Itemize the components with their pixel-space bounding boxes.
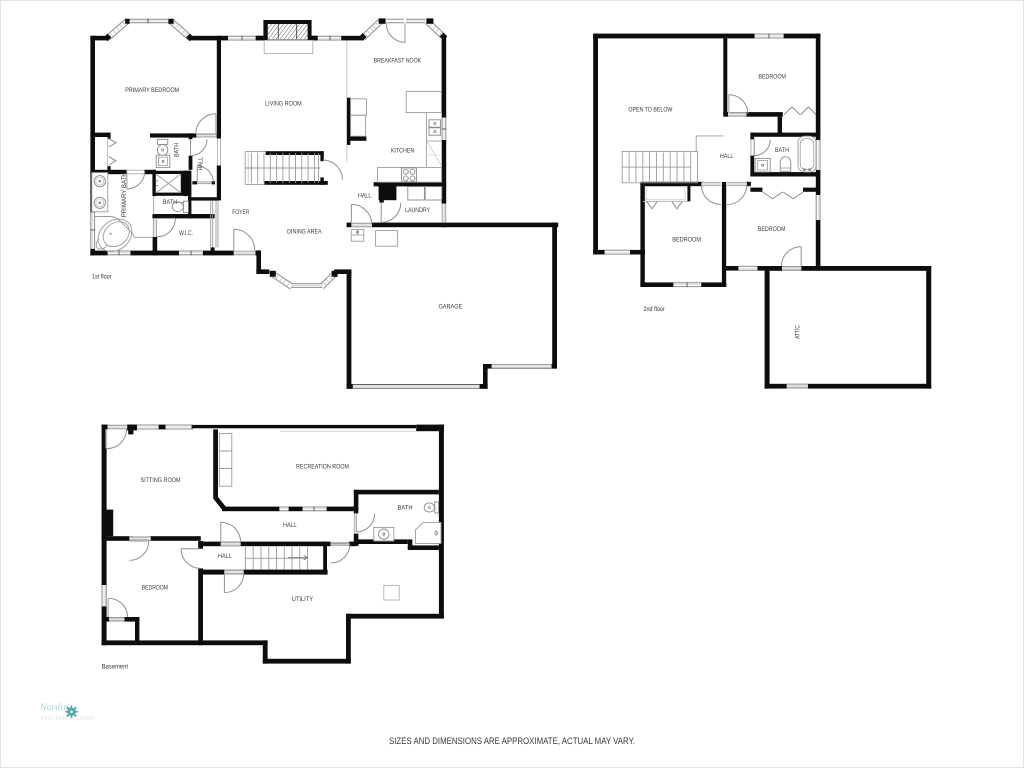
- svg-text:OPEN TO BELOW: OPEN TO BELOW: [628, 107, 673, 114]
- svg-text:HALL: HALL: [358, 193, 372, 200]
- svg-text:BREAKFAST NOOK: BREAKFAST NOOK: [374, 58, 422, 65]
- svg-text:BEDROOM: BEDROOM: [672, 237, 701, 244]
- svg-text:HALL: HALL: [720, 153, 734, 160]
- svg-text:BATH: BATH: [173, 143, 180, 157]
- svg-text:BEDROOM: BEDROOM: [758, 226, 786, 233]
- svg-text:HALL: HALL: [283, 522, 297, 529]
- svg-text:FOYER: FOYER: [232, 209, 249, 216]
- svg-text:BEDROOM: BEDROOM: [758, 74, 786, 81]
- svg-text:BEDROOM: BEDROOM: [142, 584, 168, 591]
- svg-text:Basement: Basement: [102, 664, 128, 671]
- svg-text:GARAGE: GARAGE: [439, 304, 463, 311]
- svg-text:1st floor: 1st floor: [92, 274, 112, 281]
- svg-text:DINING AREA: DINING AREA: [287, 228, 322, 235]
- svg-text:BATH: BATH: [163, 199, 177, 206]
- svg-text:SITTING ROOM: SITTING ROOM: [141, 477, 181, 484]
- svg-text:RECREATION ROOM: RECREATION ROOM: [296, 464, 349, 471]
- svg-text:HALL: HALL: [198, 157, 205, 171]
- svg-text:BATH: BATH: [775, 147, 789, 154]
- svg-text:KITCHEN: KITCHEN: [391, 148, 415, 155]
- svg-text:W.I.C.: W.I.C.: [179, 230, 193, 237]
- svg-text:HALL: HALL: [218, 553, 232, 560]
- svg-text:ATTIC: ATTIC: [794, 325, 801, 339]
- svg-text:2nd floor: 2nd floor: [644, 306, 666, 313]
- svg-text:LIVING ROOM: LIVING ROOM: [265, 101, 302, 108]
- svg-text:BATH: BATH: [398, 504, 413, 511]
- svg-text:PRIMARY BATH: PRIMARY BATH: [121, 172, 128, 217]
- svg-text:SIZES AND DIMENSIONS ARE APPRO: SIZES AND DIMENSIONS ARE APPROXIMATE, AC…: [389, 735, 635, 746]
- svg-text:UTILITY: UTILITY: [292, 596, 314, 603]
- svg-text:LAUNDRY: LAUNDRY: [405, 207, 430, 214]
- svg-text:PRIMARY BEDROOM: PRIMARY BEDROOM: [125, 87, 179, 94]
